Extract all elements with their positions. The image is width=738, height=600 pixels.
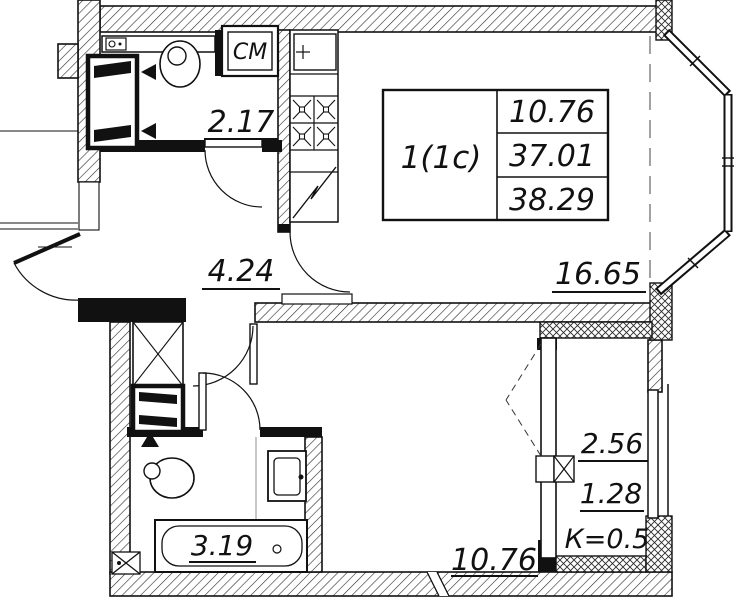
partition-sill-box [536, 456, 554, 482]
entrance-door [14, 234, 80, 300]
wall-bottom [110, 572, 672, 596]
wall-kitchen-cap [278, 224, 290, 232]
wall-top [100, 6, 658, 32]
living-area-value: 10.76 [509, 95, 595, 130]
floor-drain-icon [112, 552, 140, 574]
loggia-area-label: 2.56 [581, 427, 643, 460]
wall-left-lower [110, 322, 130, 574]
kitchen-units [290, 30, 338, 222]
wall-bath-top-right [260, 427, 322, 437]
loggia-window-swing-dashed [506, 344, 541, 456]
bay-windows [658, 32, 734, 292]
wc-door [205, 139, 262, 207]
wall-kitchen [278, 30, 290, 232]
room-label-bathroom: 3.19 [191, 529, 253, 562]
entry-jamb-niche [79, 182, 99, 230]
room-label-hallway: 4.24 [208, 254, 275, 289]
vent-shaft [133, 322, 183, 386]
valve-triangle-icon [141, 123, 156, 139]
exterior-lines [0, 131, 78, 247]
loggia-glazing [648, 390, 658, 518]
riser-box-wc [88, 56, 137, 148]
washing-machine-place: СМ [222, 26, 278, 76]
wall-living-bedroom [255, 303, 658, 322]
floor-plan: СМ [0, 0, 738, 600]
loggia-bottom-band [556, 556, 646, 572]
room-label-wc: 2.17 [208, 105, 275, 140]
loggia-corner-block [646, 516, 672, 572]
wall-left-step [58, 44, 78, 78]
wall-wc-stub [215, 30, 221, 76]
loggia-coefficient-label: К=0.5 [565, 524, 650, 555]
room-label-bedroom: 10.76 [451, 543, 537, 578]
riser-box-lobby [133, 386, 183, 432]
valve-triangle-icon [141, 64, 156, 80]
floor-plan-page: СМ [0, 0, 738, 600]
partition-vent-box [554, 456, 574, 482]
loggia-reduced-label: 1.28 [580, 477, 642, 510]
loggia-partition-window [541, 338, 556, 558]
total-area-value: 38.29 [509, 183, 595, 218]
wall-wc-bottom-right [262, 140, 282, 152]
apartment-table: 1(1с) 10.76 37.01 38.29 [383, 90, 608, 220]
living-room-door [282, 232, 352, 304]
apartment-area-value: 37.01 [509, 139, 595, 174]
room-label-living: 16.65 [555, 257, 641, 292]
washing-machine-label: СМ [233, 40, 267, 65]
wall-hall-bottom-left [78, 298, 186, 322]
loggia-top-band [540, 322, 652, 338]
wall-loggia-right [648, 340, 662, 392]
apartment-type-label: 1(1с) [401, 140, 482, 176]
